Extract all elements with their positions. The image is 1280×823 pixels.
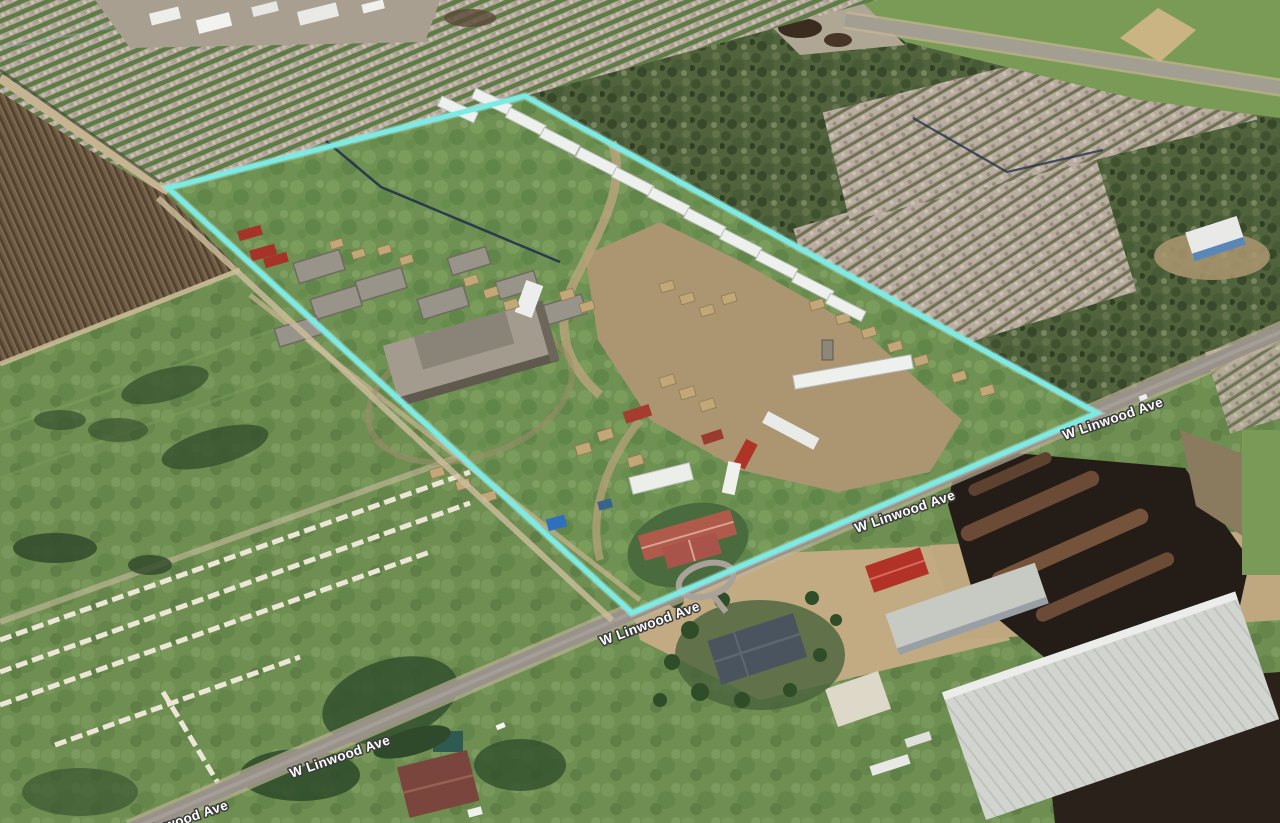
map-canvas: W Linwood Ave W Linwood Ave W Linwood Av… xyxy=(0,0,1280,823)
map-viewport[interactable]: W Linwood Ave W Linwood Ave W Linwood Av… xyxy=(0,0,1280,823)
block-tower xyxy=(822,340,833,360)
